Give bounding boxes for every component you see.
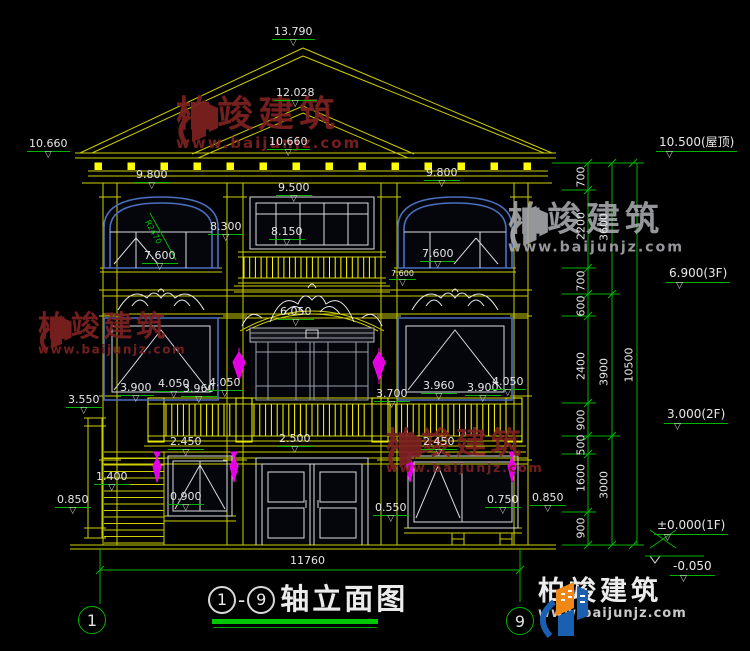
level-marker-icon: ▽ — [438, 180, 445, 188]
level-marker-icon: ▽ — [435, 449, 442, 457]
elevation-label: 12.028▽ — [274, 87, 317, 101]
chain-dimension-text: 600 — [575, 296, 588, 317]
level-marker-icon: ▽ — [292, 319, 299, 327]
elevation-label: 9.500▽ — [276, 182, 312, 196]
chain-dimension-text: 2200 — [575, 212, 588, 240]
level-marker-icon: ▽ — [291, 446, 298, 454]
elevation-label: 3.700▽ — [374, 388, 410, 402]
elevation-label: 7.600▽ — [389, 269, 416, 280]
elevation-label: 2.450▽ — [421, 436, 457, 450]
elevation-label: 1.400▽ — [94, 471, 130, 485]
elevation-label: 8.150▽ — [269, 226, 305, 240]
level-marker-icon: ▽ — [80, 407, 87, 415]
elevation-label: 2.500▽ — [277, 433, 313, 447]
dash: - — [238, 588, 245, 612]
elevation-label: 0.750▽ — [485, 494, 521, 508]
chain-dimension-text: 900 — [575, 410, 588, 431]
level-marker-icon: ▽ — [674, 423, 681, 431]
level-marker-icon: ▽ — [435, 393, 442, 401]
axis-circle-start: 1 — [208, 586, 236, 614]
axis-bubble-right: 9 — [506, 607, 534, 635]
chain-dimension-text: 2400 — [575, 352, 588, 380]
elevation-label: 4.050▽ — [490, 376, 526, 390]
axis-number: 1 — [87, 611, 97, 630]
level-marker-icon: ▽ — [387, 515, 394, 523]
level-marker-icon: ▽ — [222, 234, 229, 242]
watermark-logo-icon — [38, 312, 75, 355]
elevation-label: 0.850▽ — [55, 494, 91, 508]
chain-dimension-text: 10500 — [623, 348, 636, 383]
level-marker-icon: ▽ — [283, 239, 290, 247]
elevation-label: 8.300▽ — [208, 221, 244, 235]
level-marker-icon: ▽ — [434, 261, 441, 269]
drawing-title: 1 - 9 轴立面图 — [208, 585, 408, 614]
chain-dimension-text: 500 — [575, 435, 588, 456]
level-marker-icon: ▽ — [182, 504, 189, 512]
floor-level-label: 3.000(2F)▽ — [664, 408, 728, 424]
elevation-label: 7.600▽ — [142, 250, 178, 264]
level-marker-icon: ▽ — [108, 484, 115, 492]
level-marker-icon: ▽ — [504, 389, 511, 397]
chain-dimension-text: 700 — [575, 271, 588, 292]
level-marker-icon: ▽ — [499, 507, 506, 515]
level-marker-icon: ▽ — [148, 182, 155, 190]
elevation-label: 7.600▽ — [420, 248, 456, 262]
level-marker-icon: ▽ — [221, 390, 228, 398]
watermark: 柏竣建筑 www.baijunjz.com — [508, 202, 684, 255]
watermark-logo-icon — [386, 428, 425, 474]
brand-logo-icon — [538, 578, 592, 642]
elevation-label: 10.660▽ — [267, 136, 310, 150]
elevation-label: 13.790▽ — [272, 26, 315, 40]
level-marker-icon: ▽ — [132, 395, 139, 403]
elevation-label: 9.800▽ — [424, 167, 460, 181]
elevation-label: 4.050▽ — [207, 377, 243, 391]
cad-elevation-canvas: 柏竣建筑 www.baijunjz.com 柏竣建筑 www.baijunjz.… — [0, 0, 750, 651]
elevation-label: 0.900▽ — [168, 491, 204, 505]
chain-dimension-text: 1600 — [575, 464, 588, 492]
axis-number: 9 — [515, 612, 525, 631]
elevation-label: 0.850▽ — [530, 492, 566, 506]
elevation-label: 9.800▽ — [134, 169, 170, 183]
watermark: 柏竣建筑 www.baijunjz.com — [386, 428, 543, 475]
axis-bubble-left: 1 — [78, 606, 106, 634]
title-underline-thick — [212, 619, 378, 624]
elevation-label: 10.660▽ — [27, 138, 70, 152]
level-marker-icon: ▽ — [676, 282, 683, 290]
site-logo: 柏竣建筑 www.baijunjz.com — [538, 578, 687, 621]
axis-circle-end: 9 — [247, 586, 275, 614]
chain-dimension-text: 900 — [575, 518, 588, 539]
level-marker-icon: ▽ — [170, 391, 177, 399]
level-marker-icon: ▽ — [290, 195, 297, 203]
watermark-logo-icon — [176, 96, 222, 150]
elevation-label: 2.450▽ — [168, 436, 204, 450]
floor-level-label: 6.900(3F)▽ — [666, 267, 730, 283]
title-underline-thin — [213, 627, 377, 628]
watermark: 柏竣建筑 www.baijunjz.com — [38, 312, 186, 357]
level-marker-icon: ▽ — [290, 39, 297, 47]
level-marker-icon: ▽ — [292, 100, 299, 108]
elevation-label: 6.050▽ — [278, 306, 314, 320]
elevation-label: 0.550▽ — [373, 502, 409, 516]
floor-level-label: -0.050▽ — [670, 560, 715, 576]
level-marker-icon: ▽ — [399, 279, 406, 287]
level-marker-icon: ▽ — [388, 401, 395, 409]
elevation-label: 3.960▽ — [421, 380, 457, 394]
elevation-label: 3.900▽ — [118, 382, 154, 396]
elevation-label: 3.550▽ — [66, 394, 102, 408]
elevation-label: 11760 — [290, 555, 325, 567]
level-marker-icon: ▽ — [664, 534, 671, 542]
level-marker-icon: ▽ — [69, 507, 76, 515]
floor-level-label: ±0.000(1F)▽ — [654, 519, 728, 535]
level-marker-icon: ▽ — [45, 151, 52, 159]
level-marker-icon: ▽ — [195, 396, 202, 404]
chain-dimension-text: 3600 — [598, 213, 611, 241]
floor-level-label: 10.500(屋顶)▽ — [656, 136, 737, 152]
level-marker-icon: ▽ — [544, 505, 551, 513]
level-marker-icon: ▽ — [285, 149, 292, 157]
level-marker-icon: ▽ — [156, 263, 163, 271]
level-marker-icon: ▽ — [666, 151, 673, 159]
level-marker-icon: ▽ — [182, 449, 189, 457]
level-marker-icon: ▽ — [479, 395, 486, 403]
title-text: 轴立面图 — [280, 585, 408, 614]
watermark-logo-icon — [508, 202, 552, 253]
chain-dimension-text: 700 — [575, 167, 588, 188]
chain-dimension-text: 3900 — [598, 358, 611, 386]
chain-dimension-text: 3000 — [598, 471, 611, 499]
